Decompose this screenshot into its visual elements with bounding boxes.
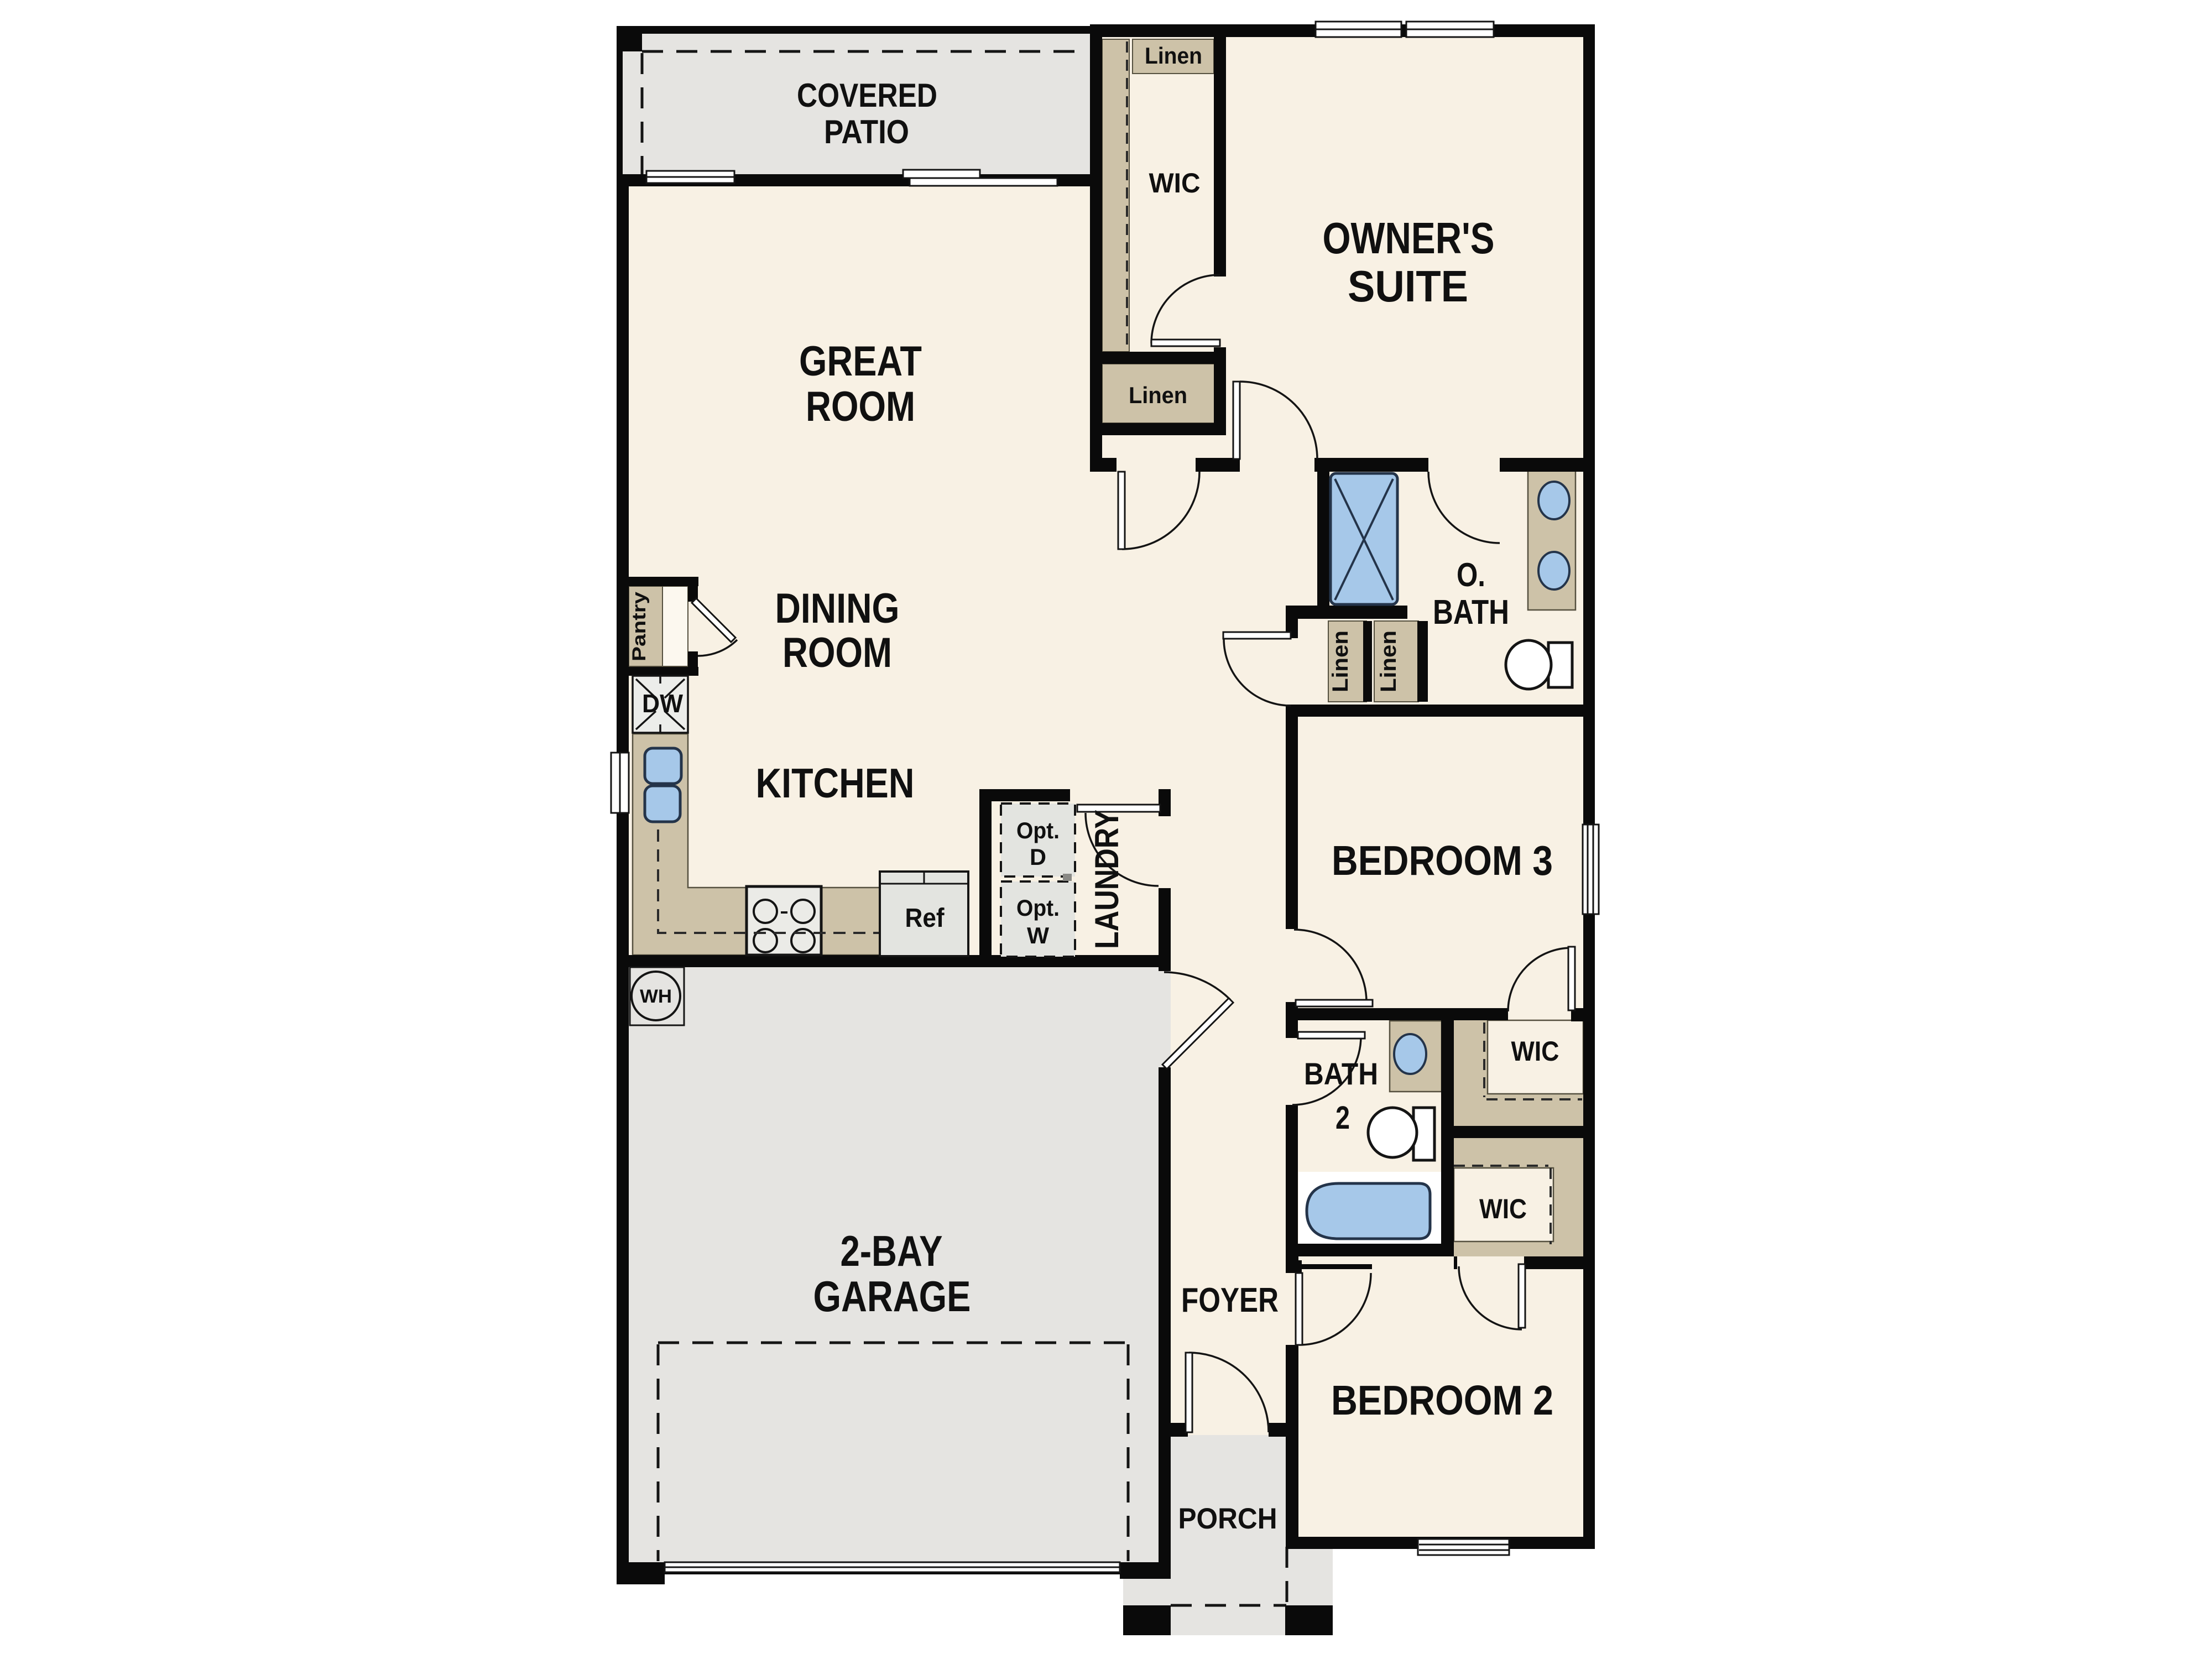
svg-text:O.: O. — [1457, 556, 1485, 593]
svg-text:ROOM: ROOM — [782, 629, 892, 676]
svg-text:ROOM: ROOM — [806, 383, 915, 430]
svg-text:Opt.: Opt. — [1016, 895, 1060, 921]
svg-text:GARAGE: GARAGE — [813, 1272, 971, 1321]
svg-text:BEDROOM 2: BEDROOM 2 — [1331, 1377, 1553, 1423]
svg-text:WIC: WIC — [1479, 1193, 1527, 1224]
svg-text:BATH: BATH — [1433, 593, 1509, 632]
svg-text:WIC: WIC — [1511, 1036, 1559, 1067]
svg-text:Linen: Linen — [1328, 630, 1353, 692]
svg-text:2: 2 — [1335, 1100, 1350, 1136]
svg-text:OWNER'S: OWNER'S — [1323, 213, 1495, 263]
svg-text:D: D — [1030, 844, 1046, 870]
svg-text:LAUNDRY: LAUNDRY — [1088, 810, 1125, 949]
svg-text:BEDROOM 3: BEDROOM 3 — [1332, 837, 1553, 884]
svg-text:SUITE: SUITE — [1348, 262, 1468, 311]
svg-text:WIC: WIC — [1149, 168, 1201, 199]
svg-text:PATIO: PATIO — [824, 113, 909, 150]
svg-text:Linen: Linen — [1145, 43, 1202, 69]
svg-text:Opt.: Opt. — [1016, 817, 1060, 843]
svg-text:KITCHEN: KITCHEN — [756, 760, 915, 806]
svg-text:WH: WH — [640, 986, 672, 1007]
svg-text:BATH: BATH — [1304, 1056, 1378, 1091]
svg-text:FOYER: FOYER — [1181, 1281, 1279, 1319]
svg-text:Ref: Ref — [905, 904, 945, 933]
svg-text:DINING: DINING — [775, 585, 900, 632]
svg-text:Pantry: Pantry — [629, 592, 650, 661]
svg-text:GREAT: GREAT — [799, 338, 922, 385]
svg-text:COVERED: COVERED — [797, 77, 937, 114]
svg-text:Linen: Linen — [1376, 630, 1401, 692]
svg-text:W: W — [1027, 922, 1049, 948]
svg-text:DW: DW — [642, 689, 684, 718]
svg-text:PORCH: PORCH — [1178, 1503, 1277, 1535]
svg-text:Linen: Linen — [1129, 382, 1187, 408]
svg-text:2-BAY: 2-BAY — [841, 1227, 943, 1275]
